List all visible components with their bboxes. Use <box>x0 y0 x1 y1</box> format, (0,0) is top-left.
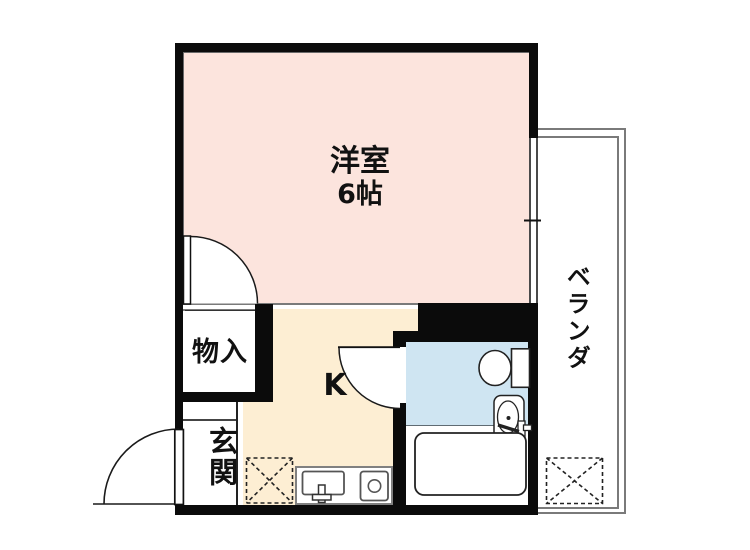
kitchen-floor-upper <box>273 309 418 333</box>
entrance-step-line <box>183 419 236 421</box>
bathroom-door-opening <box>393 347 406 403</box>
western-room-label: 洋室 6帖 <box>280 146 440 209</box>
storage-label: 物入 <box>185 339 255 367</box>
kitchen-counter <box>295 466 393 505</box>
floor-plan: 洋室 6帖 物入 玄関 K ベランダ <box>0 0 750 550</box>
window <box>529 138 538 303</box>
western-room-name: 洋室 <box>330 144 390 179</box>
bathroom-top-wall <box>418 303 538 333</box>
storage-bottom-wall <box>175 392 273 402</box>
entrance-label: 玄関 <box>206 426 236 488</box>
right-wall-upper <box>529 43 538 138</box>
kitchen-label: K <box>315 370 355 402</box>
bottom-wall <box>175 505 538 515</box>
storage-right-wall <box>255 304 273 402</box>
veranda-label: ベランダ <box>563 264 588 372</box>
right-wall-lower <box>529 303 538 515</box>
bathtub-area-floor <box>406 425 528 505</box>
top-wall <box>175 43 538 52</box>
left-wall <box>175 43 183 430</box>
western-room-size: 6帖 <box>337 179 383 210</box>
bathroom-floor <box>406 342 528 426</box>
entrance-door-arc <box>104 429 179 504</box>
